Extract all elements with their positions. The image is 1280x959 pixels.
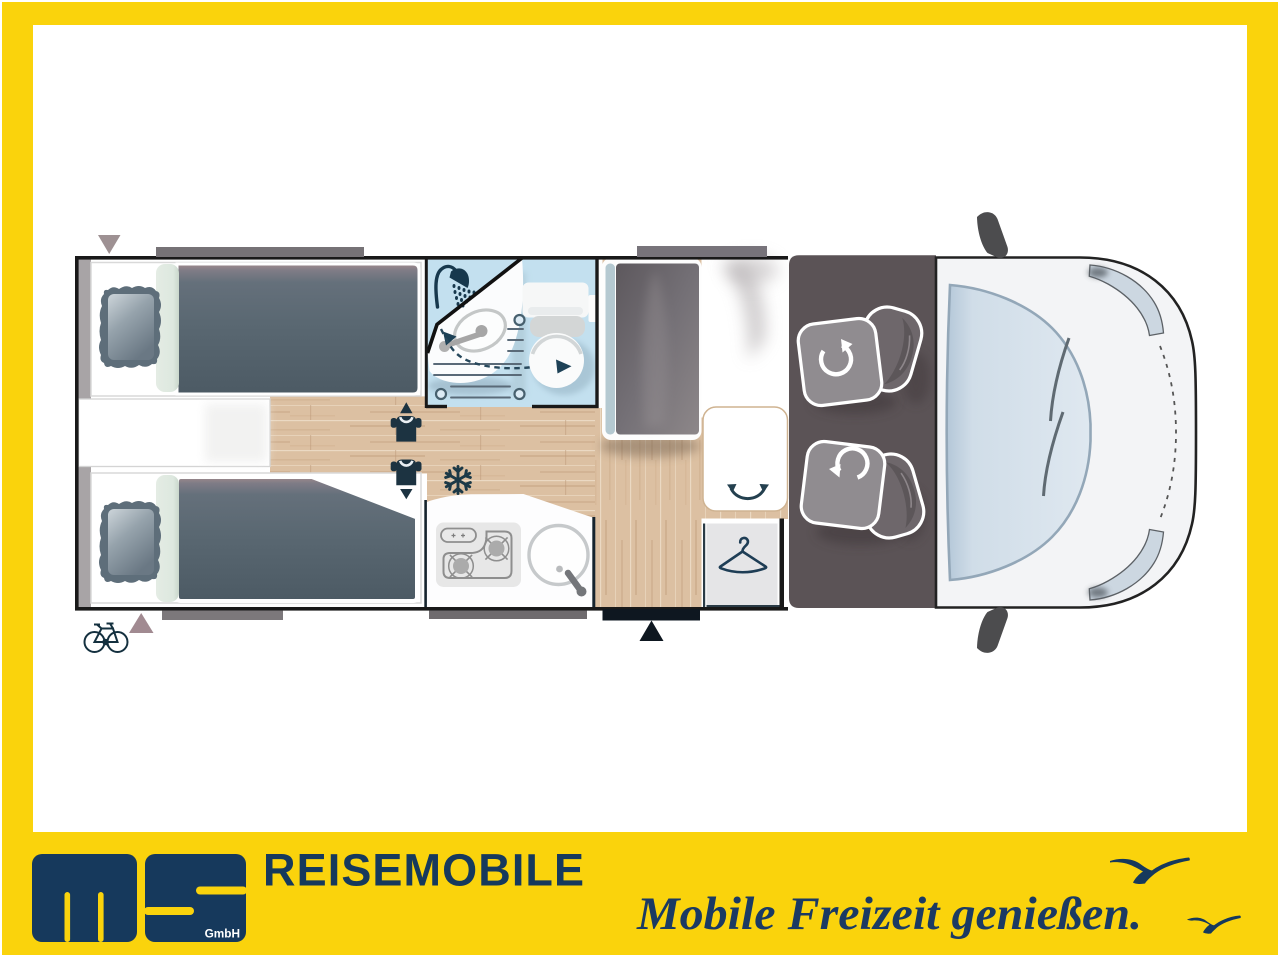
- svg-text:GmbH: GmbH: [205, 927, 240, 941]
- svg-text:REISEMOBILE: REISEMOBILE: [263, 845, 585, 896]
- svg-text:Mobile Freizeit genießen.: Mobile Freizeit genießen.: [636, 888, 1142, 940]
